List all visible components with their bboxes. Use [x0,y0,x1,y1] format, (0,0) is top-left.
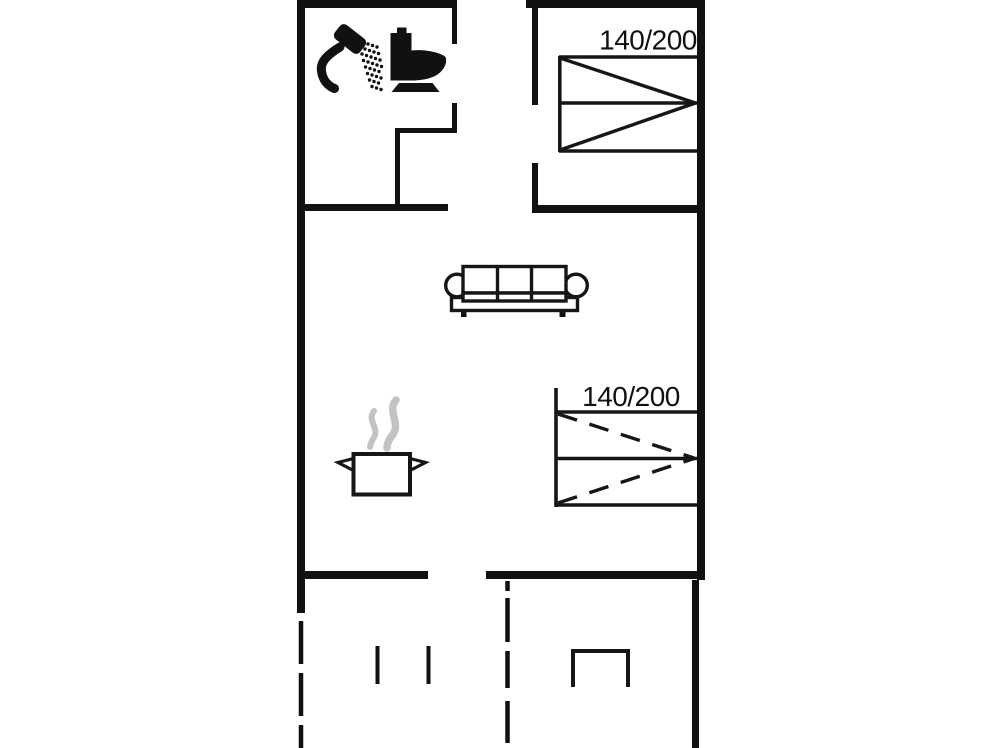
terrace-door-marks [378,646,429,684]
steam-icon [370,400,396,448]
steam-wisp-right [387,400,396,448]
terrace-table-icon [573,651,628,687]
sofa-backrest [463,267,566,294]
wall-bathroom-right-upper [452,0,457,44]
bed-diagonal-upper [560,58,696,103]
wall-right-upper [697,0,705,580]
bed-living-room: 140/200 [556,381,697,507]
bed-diagonal-lower-dashed [558,459,694,504]
bed-diagonal-lower [560,103,696,150]
toilet-icon [391,28,447,93]
wall-hall-bottom [297,204,448,211]
wall-bottom-left-segment [297,571,428,579]
walls [297,0,705,748]
wall-top-right-segment [526,0,705,8]
wall-bathroom-bottom [395,128,457,133]
water-spray-dots [356,39,383,91]
shower-icon [321,22,383,91]
bed-diagonal-upper-dashed [558,414,694,458]
toilet-base [392,83,440,92]
steam-wisp-left [370,411,375,447]
toilet-button [397,28,407,34]
table-icon [573,651,628,687]
wall-right-lower [692,580,699,748]
wall-bedroom-bottom [532,205,697,213]
wall-top-left-segment [297,0,457,8]
wall-left [297,0,305,613]
wall-bottom-right-segment [486,571,705,579]
sofa-icon [446,267,588,318]
wall-bedroom-left-upper [532,0,538,105]
terrace-boundary [301,581,508,748]
wall-bedroom-left-lower [532,163,538,211]
bed-size-label: 140/200 [582,381,680,412]
pot-handle-right [410,459,426,471]
kitchen-icons [338,400,426,495]
floorplan-svg: 140/200 140/200 [0,0,1002,748]
toilet-tank-and-bowl [391,33,447,81]
cooking-pot-icon [338,454,426,495]
bed-top-bedroom: 140/200 [559,25,697,153]
pot-body [354,454,411,495]
wall-closet-left [395,128,400,207]
shower-handle [321,47,340,89]
sofa-seat-band [463,293,566,301]
bed-size-label: 140/200 [599,25,697,56]
sofa-arm-right [565,274,588,297]
floorplan-image: 140/200 140/200 [0,0,1002,748]
pot-handle-left [338,459,354,471]
